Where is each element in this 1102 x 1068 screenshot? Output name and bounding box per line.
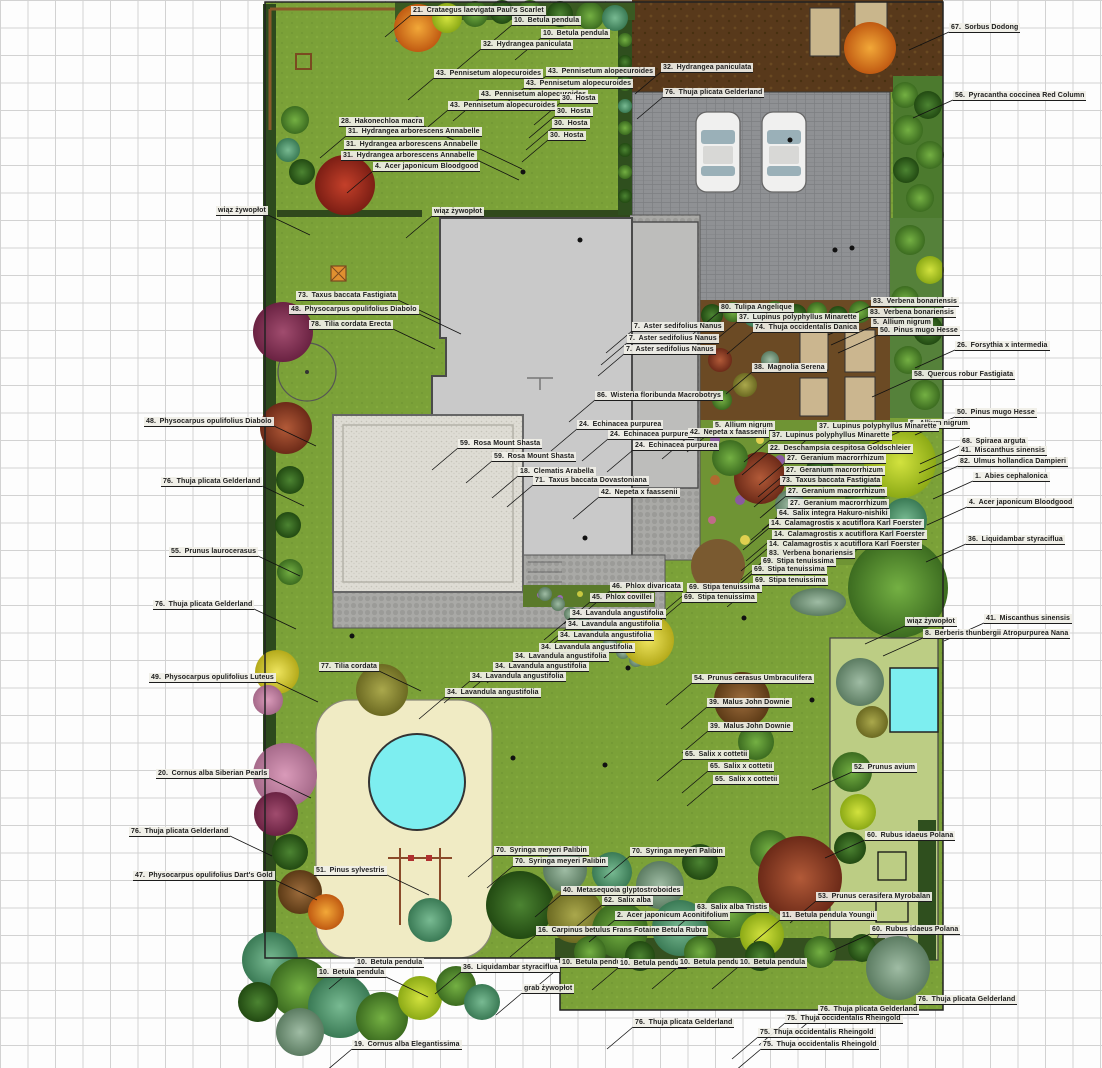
plant-label: 60. Rubus idaeus Polana xyxy=(870,925,960,935)
plant-label: 67. Sorbus Dodong xyxy=(949,23,1020,33)
plant-label: 75. Thuja occidentalis Rheingold xyxy=(758,1028,876,1038)
hedge-label: wiąz żywopłot xyxy=(905,617,957,627)
plant-label: 34. Lavandula angustifolia xyxy=(566,620,662,630)
plant-label: 50. Pinus mugo Hesse xyxy=(955,408,1037,418)
plant-label: 60. Rubus idaeus Polana xyxy=(865,831,955,841)
plant-label: 21. Crataegus laevigata Paul's Scarlet xyxy=(411,6,546,16)
plant-label: 10. Betula pendula xyxy=(678,958,747,968)
plant-label: 11. Betula pendula Youngii xyxy=(780,911,877,921)
plant-label: 54. Prunus cerasus Umbraculifera xyxy=(692,674,814,684)
plant-label: 52. Prunus avium xyxy=(852,763,917,773)
plant-label: 4. Acer japonicum Bloodgood xyxy=(373,162,480,172)
plant-label: 59. Rosa Mount Shasta xyxy=(458,439,542,449)
plant-label: 30. Hosta xyxy=(548,131,586,141)
plant-label: 41. Miscanthus sinensis xyxy=(984,614,1072,624)
plant-label: 69. Stipa tenuissima xyxy=(753,576,828,586)
plant-label: 55. Prunus laurocerasus xyxy=(169,547,258,557)
plant-label: 8. Berberis thunbergii Atropurpurea Nana xyxy=(923,629,1070,639)
plant-label: 86. Wisteria floribunda Macrobotrys xyxy=(595,391,723,401)
plant-label: 31. Hydrangea arborescens Annabelle xyxy=(346,127,482,137)
plant-label: 7. Aster sedifolius Nanus xyxy=(632,322,724,332)
plant-label: 73. Taxus baccata Fastigiata xyxy=(296,291,398,301)
plant-label: 22. Deschampsia cespitosa Goldschleier xyxy=(768,444,913,454)
plant-label: 42. Nepeta x faassenii xyxy=(688,428,769,438)
plant-label: 50. Pinus mugo Hesse xyxy=(878,326,960,336)
plant-label: 77. Tilia cordata xyxy=(319,662,379,672)
plant-label: 76. Thuja plicata Gelderland xyxy=(818,1005,919,1015)
plant-label: 65. Salix x cottetii xyxy=(683,750,749,760)
plant-label: 19. Cornus alba Elegantissima xyxy=(352,1040,462,1050)
plant-label: 71. Taxus baccata Dovastoniana xyxy=(533,476,649,486)
plant-label: 34. Lavandula angustifolia xyxy=(570,609,666,619)
plant-label: 14. Calamagrostis x acutiflora Karl Foer… xyxy=(769,519,924,529)
plant-label: 59. Rosa Mount Shasta xyxy=(492,452,576,462)
plant-label: 62. Salix alba xyxy=(602,896,653,906)
plant-label: 43. Pennisetum alopecuroides xyxy=(546,67,655,77)
plant-label: 27. Geranium macrorrhizum xyxy=(786,487,887,497)
plant-label: 36. Liquidambar styraciflua xyxy=(966,535,1065,545)
plant-label: 36. Liquidambar styraciflua xyxy=(461,963,560,973)
plant-label: 58. Quercus robur Fastigiata xyxy=(912,370,1015,380)
plant-label: 10. Betula pendula xyxy=(512,16,581,26)
plant-label: 69. Stipa tenuissima xyxy=(752,565,827,575)
hedge-label: grab żywopłot xyxy=(522,984,574,994)
plant-label: 49. Physocarpus opulifolius Luteus xyxy=(149,673,276,683)
plant-label: 2. Acer japonicum Aconitifolium xyxy=(615,911,730,921)
plant-label: 48. Physocarpus opulifolius Diabolo xyxy=(289,305,419,315)
plant-label: 73. Taxus baccata Fastigiata xyxy=(780,476,882,486)
plant-label: 45. Phlox covillei xyxy=(590,593,654,603)
plant-label: 82. Ulmus hollandica Dampieri xyxy=(958,457,1068,467)
plant-label: 43. Pennisetum alopecuroides xyxy=(524,79,633,89)
plant-label: 37. Lupinus polyphyllus Minarette xyxy=(737,313,859,323)
plant-label: 70. Syringa meyeri Palibin xyxy=(513,857,608,867)
plant-label: 51. Pinus sylvestris xyxy=(314,866,387,876)
hedge-label: wiąz żywopłot xyxy=(432,207,484,217)
labels-layer: 21. Crataegus laevigata Paul's Scarlet10… xyxy=(0,0,1102,1068)
garden-plan-canvas: 21. Crataegus laevigata Paul's Scarlet10… xyxy=(0,0,1102,1068)
plant-label: 48. Physocarpus opulifolius Diabolo xyxy=(144,417,274,427)
plant-label: 80. Tulipa Angelique xyxy=(719,303,794,313)
plant-label: 69. Stipa tenuissima xyxy=(682,593,757,603)
plant-label: 26. Forsythia x intermedia xyxy=(955,341,1050,351)
plant-label: 64. Salix integra Hakuro-nishiki xyxy=(777,509,890,519)
plant-label: 34. Lavandula angustifolia xyxy=(558,631,654,641)
plant-label: 24. Echinacea purpurea xyxy=(633,441,719,451)
plant-label: 14. Calamagrostis x acutiflora Karl Foer… xyxy=(772,530,927,540)
plant-label: 4. Acer japonicum Bloodgood xyxy=(967,498,1074,508)
plant-label: 10. Betula pendula xyxy=(541,29,610,39)
plant-label: 32. Hydrangea paniculata xyxy=(661,63,753,73)
plant-label: 76. Thuja plicata Gelderland xyxy=(129,827,230,837)
plant-label: 40. Metasequoia glyptostroboides xyxy=(561,886,683,896)
plant-label: 42. Nepeta x faassenii xyxy=(599,488,680,498)
plant-label: 76. Thuja plicata Gelderland xyxy=(663,88,764,98)
plant-label: 30. Hosta xyxy=(552,119,590,129)
plant-label: 31. Hydrangea arborescens Annabelle xyxy=(341,151,477,161)
plant-label: 76. Thuja plicata Gelderland xyxy=(153,600,254,610)
plant-label: 27. Geranium macrorrhizum xyxy=(788,499,889,509)
plant-label: 34. Lavandula angustifolia xyxy=(445,688,541,698)
plant-label: 74. Thuja occidentalis Danica xyxy=(753,323,859,333)
plant-label: 34. Lavandula angustifolia xyxy=(513,652,609,662)
plant-label: 53. Prunus cerasifera Myrobalan xyxy=(816,892,932,902)
plant-label: 34. Lavandula angustifolia xyxy=(470,672,566,682)
plant-label: 38. Magnolia Serena xyxy=(752,363,827,373)
plant-label: 32. Hydrangea paniculata xyxy=(481,40,573,50)
plant-label: 24. Echinacea purpurea xyxy=(577,420,663,430)
plant-label: 34. Lavandula angustifolia xyxy=(493,662,589,672)
plant-label: 76. Thuja plicata Gelderland xyxy=(161,477,262,487)
plant-label: 39. Malus John Downie xyxy=(708,722,793,732)
plant-label: 65. Salix x cottetii xyxy=(713,775,779,785)
plant-label: 47. Physocarpus opulifolius Dart's Gold xyxy=(133,871,275,881)
plant-label: 10. Betula pendula xyxy=(618,959,687,969)
plant-label: 27. Geranium macrorrhizum xyxy=(785,454,886,464)
plant-label: 70. Syringa meyeri Palibin xyxy=(630,847,725,857)
plant-label: 39. Malus John Downie xyxy=(707,698,792,708)
plant-label: 43. Pennisetum alopecuroides xyxy=(434,69,543,79)
plant-label: 46. Phlox divaricata xyxy=(610,582,683,592)
plant-label: 37. Lupinus polyphyllus Minarette xyxy=(770,431,892,441)
plant-label: 30. Hosta xyxy=(560,94,598,104)
plant-label: 24. Echinacea purpurea xyxy=(608,430,694,440)
plant-label: 69. Stipa tenuissima xyxy=(687,583,762,593)
plant-label: 43. Pennisetum alopecuroides xyxy=(448,101,557,111)
plant-label: 41. Miscanthus sinensis xyxy=(959,446,1047,456)
plant-label: 10. Betula pendula xyxy=(355,958,424,968)
plant-label: 10. Betula pendula xyxy=(738,958,807,968)
plant-label: 7. Aster sedifolius Nanus xyxy=(624,345,716,355)
plant-label: 83. Verbena bonariensis xyxy=(871,297,959,307)
plant-label: 30. Hosta xyxy=(555,107,593,117)
plant-label: 16. Carpinus betulus Frans Fotaine Betul… xyxy=(536,926,708,936)
plant-label: 27. Geranium macrorrhizum xyxy=(784,466,885,476)
plant-label: 65. Salix x cottetii xyxy=(708,762,774,772)
plant-label: 20. Cornus alba Siberian Pearls xyxy=(156,769,269,779)
hedge-label: wiąz żywopłot xyxy=(216,206,268,216)
plant-label: 31. Hydrangea arborescens Annabelle xyxy=(344,140,480,150)
plant-label: 75. Thuja occidentalis Rheingold xyxy=(761,1040,879,1050)
plant-label: 78. Tilia cordata Erecta xyxy=(309,320,393,330)
plant-label: 70. Syringa meyeri Palibin xyxy=(494,846,589,856)
plant-label: 76. Thuja plicata Gelderland xyxy=(633,1018,734,1028)
plant-label: 28. Hakonechloa macra xyxy=(339,117,424,127)
plant-label: 83. Verbena bonariensis xyxy=(868,308,956,318)
plant-label: 10. Betula pendula xyxy=(317,968,386,978)
plant-label: 75. Thuja occidentalis Rheingold xyxy=(785,1014,903,1024)
plant-label: 76. Thuja plicata Gelderland xyxy=(916,995,1017,1005)
plant-label: 56. Pyracantha coccinea Red Column xyxy=(953,91,1086,101)
plant-label: 1. Abies cephalonica xyxy=(973,472,1050,482)
plant-label: 7. Aster sedifolius Nanus xyxy=(627,334,719,344)
